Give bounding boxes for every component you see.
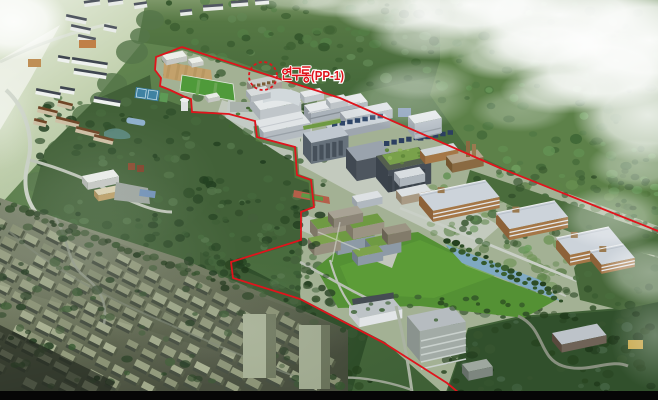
- svg-text:(PP-1): (PP-1): [311, 69, 344, 83]
